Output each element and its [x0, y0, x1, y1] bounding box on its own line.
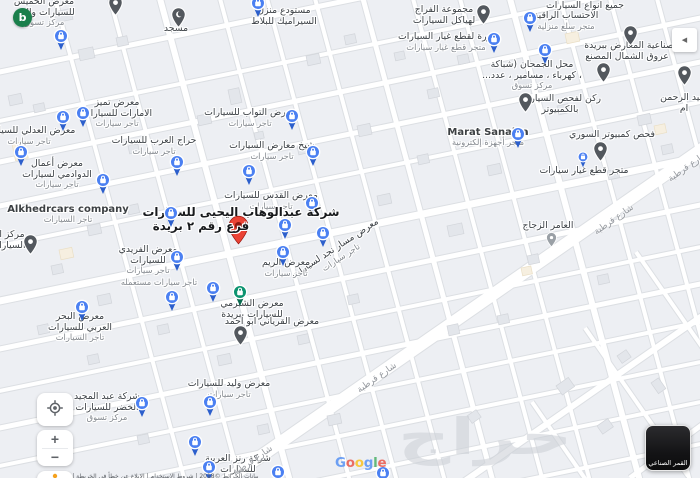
poi-pin-souri-computer-check-marker-icon[interactable]: [593, 141, 608, 162]
satellite-toggle-label: القمر الصناعي: [648, 459, 687, 470]
poi-pin-markaz-clipped-marker-icon[interactable]: [23, 234, 38, 255]
collapse-panel-button[interactable]: ◀: [672, 28, 697, 52]
poi-pin-bahr-arabi-marker-icon[interactable]: [74, 299, 90, 322]
poi-pin-reem-cars-marker-icon[interactable]: [275, 244, 291, 267]
google-logo-letter: e: [377, 455, 386, 471]
poi-label-noura-parts[interactable]: نورة لقطع غيار السياراتمتجر قطع غيار سيا…: [398, 32, 494, 52]
poi-pin-unlabeled-1-marker-icon[interactable]: [241, 163, 257, 186]
poi-label-walid-cars[interactable]: معرض وليد للسياراتتاجر سيارات: [188, 379, 270, 399]
poi-pin-unlabeled-4-marker-icon[interactable]: [205, 280, 221, 303]
poi-pin-unlabeled-3-marker-icon[interactable]: [277, 217, 293, 240]
poi-pin-sheikh-maarid-marker-icon[interactable]: [305, 144, 321, 167]
poi-pin-tawwab-cars-marker-icon[interactable]: [284, 108, 300, 131]
poi-pin-adli-cars-marker-icon[interactable]: [55, 109, 71, 132]
poi-layer: معرض الخميسللسيارات وال...مركز تسوقمسجدم…: [0, 0, 700, 478]
poi-pin-ceramic-warehouse-marker-icon[interactable]: [250, 0, 266, 18]
poi-label-ubaid-rahman[interactable]: عبيد الرحمنام: [660, 93, 700, 114]
poi-label-haraj-arab[interactable]: حراج العرب للسياراتتاجر سيارات: [112, 136, 197, 156]
poi-label-faraj-group[interactable]: مجموعة الفراجلهياكل السيارات: [413, 5, 475, 26]
poi-pin-unlabeled-5-marker-icon[interactable]: [187, 434, 203, 457]
poi-label-tawwab-cars[interactable]: معرض التواب للسياراتتاجر سيارات: [204, 108, 296, 128]
google-logo-letter: o: [355, 455, 364, 471]
poi-pin-noura-parts-marker-icon[interactable]: [486, 31, 502, 54]
poi-label-urooq-shamal[interactable]: عروق الشمال المصنع: [585, 52, 669, 63]
poi-pin-quryani-abu-ahmad-marker-icon[interactable]: [233, 325, 248, 346]
google-logo[interactable]: Google: [335, 455, 386, 471]
poi-pin-tamayuz-emirates-marker-icon[interactable]: [75, 105, 91, 128]
poi-pin-sinaiya-buraidah-marker-icon[interactable]: [623, 25, 638, 46]
poi-label-dawadmi-cars[interactable]: معرض أعمالالدوادمي لسياراتتاجر سيارات: [22, 159, 92, 189]
poi-pin-dawadmi-cars-marker-icon[interactable]: [13, 144, 29, 167]
map-controls: + −: [37, 393, 73, 478]
poi-label-souri-computer-check[interactable]: فحص كمبيوتر السوري: [569, 130, 655, 141]
google-logo-letter: o: [346, 455, 355, 471]
street-label-1: شارع قرطبة: [592, 203, 635, 237]
poi-label-tamayuz-emirates[interactable]: معرض تميزالامارات للسياراتتاجر سيارات: [82, 98, 152, 128]
satellite-toggle-button[interactable]: القمر الصناعي: [645, 425, 691, 471]
zoom-control: + −: [37, 430, 73, 466]
google-logo-letter: g: [364, 455, 373, 471]
poi-pin-masar-najd-marker-icon[interactable]: [315, 225, 331, 248]
poi-pin-shibrami-cars-marker-icon[interactable]: [232, 284, 248, 307]
pegman-button[interactable]: [37, 471, 73, 478]
poi-pin-computer-car-check-marker-icon[interactable]: [518, 92, 533, 113]
map-canvas[interactable]: حراج معرض الخميسللسيارات وال...مركز تسوق…: [0, 0, 700, 478]
poi-label-ihtisab-raqia[interactable]: الاحتساب الراقيةمتجر سلع منزلية: [534, 11, 599, 31]
pegman-icon: [48, 473, 62, 478]
poi-pin-mosque-mosque-icon[interactable]: [171, 7, 186, 28]
poi-label-masar-najd[interactable]: معرض مسار نجد لسياراتتاجر سيارات: [290, 217, 386, 289]
poi-pin-khamis-cars-marker-icon[interactable]: [53, 28, 69, 51]
poi-pin-furaidi-cars-marker-icon[interactable]: [169, 249, 185, 272]
poi-pin-ubaid-rahman-marker-icon[interactable]: [677, 65, 692, 86]
poi-pin-walid-cars-marker-icon[interactable]: [202, 394, 218, 417]
poi-label-used-cars-dealer[interactable]: تاجر سيارات مستعمله: [121, 278, 197, 287]
poi-pin-used-cars-dealer-marker-icon[interactable]: [164, 289, 180, 312]
poi-pin-unlabeled-0-marker-icon[interactable]: [95, 172, 111, 195]
zoom-in-button[interactable]: +: [37, 430, 73, 448]
poi-pin-marat-sanaiya-marker-icon[interactable]: [510, 126, 526, 149]
my-location-icon: [45, 398, 65, 421]
poi-pin-urooq-shamal-marker-icon[interactable]: [596, 62, 611, 83]
poi-pin-haraj-arab-marker-icon[interactable]: [169, 154, 185, 177]
poi-label-sheikh-maarid[interactable]: شيخ معارض السياراتتاجر سيارات: [229, 141, 315, 161]
google-logo-letter: G: [335, 455, 346, 471]
poi-label-aamer-glass[interactable]: العامر الزجاج: [523, 221, 574, 232]
poi-pin-unlabeled-8-marker-icon[interactable]: [108, 0, 123, 16]
street-label-0: شارع قرطبة: [666, 150, 700, 184]
poi-pin-ihtisab-raqia-marker-icon[interactable]: [522, 10, 538, 33]
poi-pin-jamhan-shop-marker-icon[interactable]: [537, 42, 553, 65]
my-location-button[interactable]: [37, 393, 73, 426]
poi-pin-unlabeled-2-marker-icon[interactable]: [163, 205, 179, 228]
poi-pin-spare-parts-store-marker-icon[interactable]: [577, 151, 589, 168]
poi-label-alkhedrcars[interactable]: Alkhedrcars companyتاجر السيارات: [7, 204, 129, 225]
poi-pin-aamer-glass-marker-icon[interactable]: [546, 232, 557, 247]
poi-pin-abdulmajeed-khudair-marker-icon[interactable]: [134, 395, 150, 418]
poi-label-jamhan-shop[interactable]: محل الجمحان (شباكة، كهرباء ، مسامير ، عد…: [482, 60, 582, 90]
poi-pin-faraj-group-marker-icon[interactable]: [476, 4, 491, 25]
zoom-out-button[interactable]: −: [37, 449, 73, 467]
street-label-2: شارع قرطبة: [355, 361, 398, 395]
profile-badge[interactable]: b: [13, 8, 32, 27]
poi-pin-unlabeled-6-marker-icon[interactable]: [270, 464, 286, 478]
poi-label-abdulmajeed-khudair[interactable]: شركة عبد المجيدالخضر للسياراتمركز تسوق: [74, 392, 140, 422]
map-attribution: بيانات الخرائط ©2018 | شروط الاستخدام | …: [55, 473, 259, 478]
